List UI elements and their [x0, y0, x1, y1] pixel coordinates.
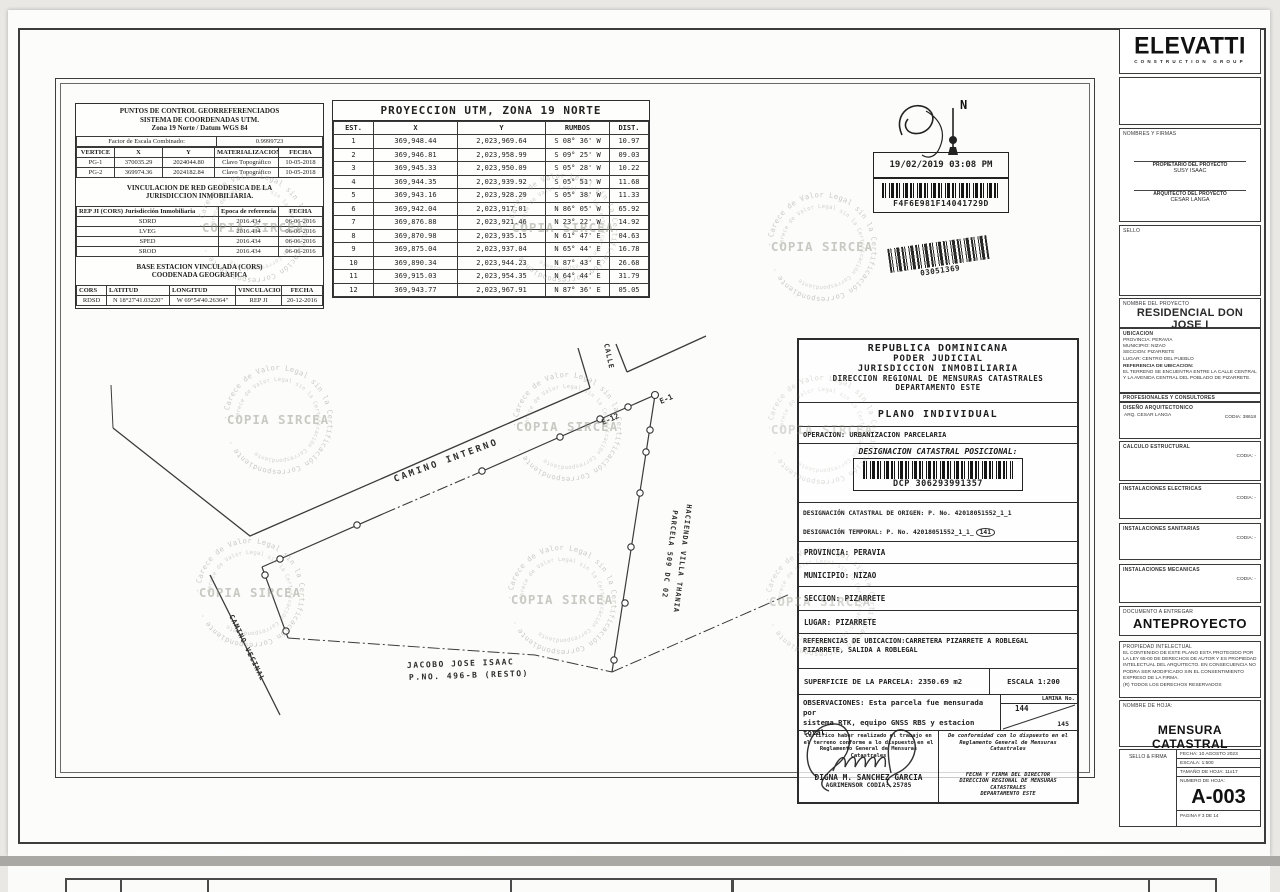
- control-points-table: PUNTOS DE CONTROL GEORREFERENCIADOS SIST…: [75, 103, 324, 309]
- table-cell: SPED: [77, 236, 219, 246]
- table-cell: S 05° 51' W: [546, 175, 610, 189]
- vinculacion-title: VINCULACION DE RED GEODESICA DE LAJURISD…: [76, 184, 323, 201]
- sello-firma-label: SELLO & FIRMA: [1120, 750, 1177, 826]
- table-cell: 2,023,935.15: [458, 229, 546, 243]
- blank-box: [1119, 77, 1261, 125]
- profesionales-header: PROFESIONALES Y CONSULTORES: [1119, 393, 1261, 402]
- table-cell: 06-06-2016: [279, 226, 323, 236]
- table-cell: REP JI: [236, 295, 282, 305]
- owner-label-1: JACOBO JOSE ISAAC: [406, 657, 514, 670]
- table-cell: 06-06-2016: [279, 246, 323, 256]
- table-cell: S 05° 38' W: [546, 189, 610, 203]
- table-cell: 2,023,917.01: [458, 202, 546, 216]
- observaciones-row: OBSERVACIONES: Esta parcela fue mensurad…: [799, 694, 1077, 730]
- north-letter: N: [960, 98, 967, 112]
- table-cell: 10.97: [610, 135, 649, 149]
- table-cell: 369,876.88: [374, 216, 458, 230]
- table-row: 12369,943.772,023,967.91N 87° 36' E05.05: [334, 283, 649, 297]
- dcp-barcode-bars: [863, 461, 1013, 479]
- table-cell: 369,875.04: [374, 243, 458, 257]
- table-row: PG-2369974.362024182.84Clavo Topográfico…: [77, 167, 323, 177]
- base-station-title: BASE ESTACION VINCULADA (CORS)COODENADA …: [76, 263, 323, 280]
- table-cell: 369,890.34: [374, 256, 458, 270]
- calculo-box: CALCULO ESTRUCTURAL CODIA: -: [1119, 441, 1261, 481]
- designacion-temporal: DESIGNACIÓN TEMPORAL: P. No. 42018051552…: [799, 523, 1077, 541]
- superficie-value: SUPERFICIE DE LA PARCELA: 2350.69 m2: [799, 669, 990, 694]
- sello-box: SELLO: [1119, 225, 1261, 296]
- table-cell: 2,023,921.46: [458, 216, 546, 230]
- nombres-firmas-box: NOMBRES Y FIRMAS PROPIETARIO DEL PROYECT…: [1119, 128, 1261, 222]
- table-cell: 2,023,967.91: [458, 283, 546, 297]
- sheet-name: MENSURA CATASTRAL: [1120, 723, 1260, 751]
- table-row: 5369,943.162,023,928.29S 05° 38' W11.33: [334, 189, 649, 203]
- vecinal-label: CAMINO VECINAL: [227, 613, 266, 682]
- table-cell: 12: [334, 283, 374, 297]
- table-cell: 2,023,954.35: [458, 270, 546, 284]
- ubicacion-box: UBICACION PROVINCIA: PERAVIA MUNICIPIO: …: [1119, 328, 1261, 393]
- dcp-code: DCP 306293991357: [854, 479, 1022, 489]
- next-page-border: [1215, 878, 1217, 892]
- table-cell: S 08° 36' W: [546, 135, 610, 149]
- table-cell: Clavo Topográfico: [215, 157, 279, 167]
- dcp-section: DESIGNACION CATASTRAL POSICIONAL: DCP 30…: [799, 443, 1077, 502]
- sheet-page: CAMINO INTERNO CAMINO VECINAL CALLE E-1 …: [8, 10, 1270, 856]
- calle-label: CALLE: [602, 342, 615, 369]
- table-cell: 7: [334, 216, 374, 230]
- table-row: RDSDN 18°27'41.03220"W 69°54'40.26364"RE…: [77, 295, 323, 305]
- superficie-row: SUPERFICIE DE LA PARCELA: 2350.69 m2 ESC…: [799, 668, 1077, 694]
- table-cell: S 05° 28' W: [546, 162, 610, 176]
- table-cell: 369,948.44: [374, 135, 458, 149]
- table-cell: PG-2: [77, 167, 115, 177]
- table-cell: 369,942.04: [374, 202, 458, 216]
- table-row: 7369,876.882,023,921.46N 23° 22' W14.92: [334, 216, 649, 230]
- next-page-border: [65, 878, 67, 892]
- arquitecto-name: CESAR LANGA: [1120, 197, 1260, 203]
- table-cell: 09.03: [610, 148, 649, 162]
- table-cell: 16.78: [610, 243, 649, 257]
- documento-box: DOCUMENTO A ENTREGAR ANTEPROYECTO: [1119, 606, 1261, 636]
- director-certification: De conformidad con lo dispuesto en el Re…: [939, 731, 1077, 802]
- observaciones-text: OBSERVACIONES: Esta parcela fue mensurad…: [799, 695, 1000, 730]
- table-cell: 369,944.35: [374, 175, 458, 189]
- road-edge-line: [113, 388, 590, 536]
- station-e12-label: E-12: [600, 411, 620, 427]
- next-page-border: [207, 878, 209, 892]
- table-cell: LVEG: [77, 226, 219, 236]
- table-cell: S 09° 25' W: [546, 148, 610, 162]
- table-row: 8369,870.982,023,935.15N 61° 47' E04.63: [334, 229, 649, 243]
- table-row: SPED2016.43406-06-2016: [77, 236, 323, 246]
- utm-title: PROYECCION UTM, ZONA 19 NORTE: [333, 101, 649, 121]
- fecha-field: FECHA: 10 AGOSTO 2023: [1177, 750, 1260, 759]
- next-page-top: [8, 866, 1270, 892]
- next-page-border: [731, 878, 734, 892]
- table-cell: 2016.434: [219, 226, 279, 236]
- base-station-table: CORS LATITUD LONGITUD VINCULACION FECHA …: [76, 285, 323, 306]
- table-cell: 2,023,950.09: [458, 162, 546, 176]
- surveyor-codia: AGRIMENSOR CODIA: 25785: [802, 782, 935, 789]
- date-stamp-text: 19/02/2019 03:08 PM: [890, 160, 993, 170]
- table-cell: 6: [334, 202, 374, 216]
- table-cell: 3: [334, 162, 374, 176]
- table-cell: N 65° 44' E: [546, 243, 610, 257]
- tamano-field: TAMAÑO DE HOJA: 11x17: [1177, 768, 1260, 777]
- plano-individual: PLANO INDIVIDUAL: [799, 402, 1077, 426]
- lamina-number-bottom: 145: [1057, 720, 1069, 728]
- table-cell: N 87° 36' E: [546, 283, 610, 297]
- table-cell: 2,023,958.99: [458, 148, 546, 162]
- municipio-row: MUNICIPIO: NIZAO: [799, 563, 1077, 586]
- table-cell: Clavo Topográfico: [215, 167, 279, 177]
- table-cell: 06-06-2016: [279, 216, 323, 226]
- table-row: SROD2016.43406-06-2016: [77, 246, 323, 256]
- table-cell: 369974.36: [115, 167, 163, 177]
- propiedad-box: PROPIEDAD INTELECTUAL EL CONTENIDO DE ES…: [1119, 641, 1261, 698]
- table-row: PG-1370035.292024044.80Clavo Topográfico…: [77, 157, 323, 167]
- table-cell: RDSD: [77, 295, 107, 305]
- table-row: LVEG2016.43406-06-2016: [77, 226, 323, 236]
- table-cell: 2024182.84: [163, 167, 215, 177]
- table-cell: N 87° 43' E: [546, 256, 610, 270]
- table-cell: 2,023,969.64: [458, 135, 546, 149]
- table-cell: SDRD: [77, 216, 219, 226]
- table-cell: 10.22: [610, 162, 649, 176]
- electricas-box: INSTALACIONES ELECTRICAS CODIA: -: [1119, 483, 1261, 519]
- next-page-border: [65, 878, 1217, 880]
- road-label: CAMINO INTERNO: [392, 437, 500, 484]
- mecanicas-box: INSTALACIONES MECANICAS CODIA: -: [1119, 564, 1261, 603]
- table-cell: 5: [334, 189, 374, 203]
- table-cell: 11.33: [610, 189, 649, 203]
- judicial-header: REPUBLICA DOMINICANA PODER JUDICIAL JURI…: [799, 340, 1077, 402]
- next-page-border: [1148, 878, 1150, 892]
- table-cell: 26.68: [610, 256, 649, 270]
- referencias-row: REFERENCIAS DE UBICACION:CARRETERA PIZAR…: [799, 633, 1077, 668]
- table-cell: 05.05: [610, 283, 649, 297]
- table-cell: 10-05-2018: [279, 157, 323, 167]
- next-page-border: [120, 878, 122, 892]
- table-row: 6369,942.042,023,917.01N 86° 05' W65.92: [334, 202, 649, 216]
- table-cell: 369,943.16: [374, 189, 458, 203]
- table-cell: N 23° 22' W: [546, 216, 610, 230]
- diseno-box: DISEÑO ARQUITECTONICO ARQ. CESAR LANGA C…: [1119, 402, 1261, 439]
- table-cell: 2016.434: [219, 246, 279, 256]
- table-cell: 369,945.33: [374, 162, 458, 176]
- table-cell: 369,946.81: [374, 148, 458, 162]
- table-cell: 2,023,939.92: [458, 175, 546, 189]
- table-row: 3369,945.332,023,950.09S 05° 28' W10.22: [334, 162, 649, 176]
- table-cell: 11.68: [610, 175, 649, 189]
- sheet-info-box: SELLO & FIRMA FECHA: 10 AGOSTO 2023 ESCA…: [1119, 749, 1261, 827]
- table-cell: 2: [334, 148, 374, 162]
- next-page-border: [510, 878, 512, 892]
- table-cell: N 61° 47' E: [546, 229, 610, 243]
- operacion-row: OPERACION: URBANIZACION PARCELARIA: [799, 426, 1077, 443]
- table-cell: 14.92: [610, 216, 649, 230]
- escala-field: ESCALA: 1:500: [1177, 759, 1260, 768]
- table-row: SDRD2016.43406-06-2016: [77, 216, 323, 226]
- judicial-panel: REPUBLICA DOMINICANA PODER JUDICIAL JURI…: [797, 338, 1079, 804]
- table-cell: 369,870.98: [374, 229, 458, 243]
- owner-label-2: P.NO. 496-B (RESTO): [408, 668, 528, 681]
- table-cell: N 64° 44' E: [546, 270, 610, 284]
- table-row: 10369,890.342,023,944.23N 87° 43' E26.68: [334, 256, 649, 270]
- table-cell: 31.79: [610, 270, 649, 284]
- table-cell: 369,943.77: [374, 283, 458, 297]
- table-cell: 370035.29: [115, 157, 163, 167]
- propietario-name: SUSY ISAAC: [1120, 168, 1260, 174]
- lamina-number-top: 144: [1015, 704, 1029, 713]
- station-markers: [261, 391, 658, 663]
- table-cell: 06-06-2016: [279, 236, 323, 246]
- table-cell: 2016.434: [219, 236, 279, 246]
- table-row: 1369,948.442,023,969.64S 08° 36' W10.97: [334, 135, 649, 149]
- station-e1-label: E-1: [658, 391, 674, 405]
- vertices-table: VERTICEX YMATERIALIZACION FECHA PG-13700…: [76, 147, 323, 178]
- elevatti-logo: ELEVATTI: [1120, 31, 1260, 59]
- control-title: PUNTOS DE CONTROL GEORREFERENCIADOS: [76, 107, 323, 116]
- table-row: 2369,946.812,023,958.99S 09° 25' W09.03: [334, 148, 649, 162]
- table-cell: 10: [334, 256, 374, 270]
- vinculacion-table: REP JI (CORS) Jurisdicción Inmobiliaria …: [76, 206, 323, 257]
- table-cell: 2024044.80: [163, 157, 215, 167]
- sheet-name-box: NOMBRE DE HOJA: MENSURA CATASTRAL: [1119, 700, 1261, 747]
- table-cell: SROD: [77, 246, 219, 256]
- table-cell: N 18°27'41.03220": [107, 295, 170, 305]
- table-cell: 20-12-2016: [282, 295, 323, 305]
- table-cell: N 86° 05' W: [546, 202, 610, 216]
- logo-box: ELEVATTI CONSTRUCTION GROUP: [1119, 28, 1261, 74]
- project-name-box: NOMBRE DEL PROYECTO RESIDENCIAL DON JOSE…: [1119, 298, 1261, 328]
- table-cell: 1: [334, 135, 374, 149]
- surveyor-certification: Certifico haber realizado el trabajo en …: [799, 731, 939, 802]
- scale-factor-row: Factor de Escala Combinado: 0.9999723: [76, 136, 323, 147]
- table-cell: 4: [334, 175, 374, 189]
- table-cell: 11: [334, 270, 374, 284]
- table-cell: W 69°54'40.26364": [170, 295, 236, 305]
- pagina-field: PAGINA # 3 DE 14: [1177, 810, 1260, 818]
- temporal-circled-number: 141: [976, 528, 995, 537]
- page-gap: [0, 856, 1280, 866]
- designacion-origen: DESIGNACIÓN CATASTRAL DE ORIGEN: P. No. …: [799, 502, 1077, 523]
- utm-projection-table: PROYECCION UTM, ZONA 19 NORTE EST.X YRUM…: [332, 100, 650, 298]
- date-stamp: 19/02/2019 03:08 PM: [873, 152, 1009, 178]
- escala-value: ESCALA 1:200: [990, 669, 1077, 694]
- table-cell: 2,023,937.04: [458, 243, 546, 257]
- table-row: 11369,915.032,023,954.35N 64° 44' E31.79: [334, 270, 649, 284]
- table-cell: 2016.434: [219, 216, 279, 226]
- table-cell: 2,023,944.23: [458, 256, 546, 270]
- sanitarias-box: INSTALACIONES SANITARIAS CODIA: -: [1119, 523, 1261, 560]
- sheet-number: A-003: [1177, 785, 1260, 810]
- lamina-box: LAMINA No. 144 145: [1000, 695, 1077, 730]
- documento-value: ANTEPROYECTO: [1120, 616, 1260, 631]
- table-cell: 369,915.03: [374, 270, 458, 284]
- lugar-row: LUGAR: PIZARRETE: [799, 610, 1077, 633]
- table-cell: 8: [334, 229, 374, 243]
- table-row: 9369,875.042,023,937.04N 65° 44' E16.78: [334, 243, 649, 257]
- table-row: 4369,944.352,023,939.92S 05° 51' W11.68: [334, 175, 649, 189]
- provincia-row: PROVINCIA: PERAVIA: [799, 541, 1077, 563]
- table-cell: 2,023,928.29: [458, 189, 546, 203]
- table-cell: 65.92: [610, 202, 649, 216]
- barcode-1: F4F6E981F14041729D: [873, 178, 1009, 213]
- table-cell: PG-1: [77, 157, 115, 167]
- table-cell: 04.63: [610, 229, 649, 243]
- barcode-1-bars: [882, 183, 1000, 198]
- table-cell: 9: [334, 243, 374, 257]
- surveyor-name: DIGNA M. SANCHEZ GARCIA: [802, 773, 935, 782]
- barcode-1-label: F4F6E981F14041729D: [893, 199, 989, 208]
- certification-row: Certifico haber realizado el trabajo en …: [799, 730, 1077, 802]
- table-cell: 10-05-2018: [279, 167, 323, 177]
- dcp-barcode: DCP 306293991357: [853, 458, 1023, 491]
- seccion-row: SECCION: PIZARRETE: [799, 586, 1077, 610]
